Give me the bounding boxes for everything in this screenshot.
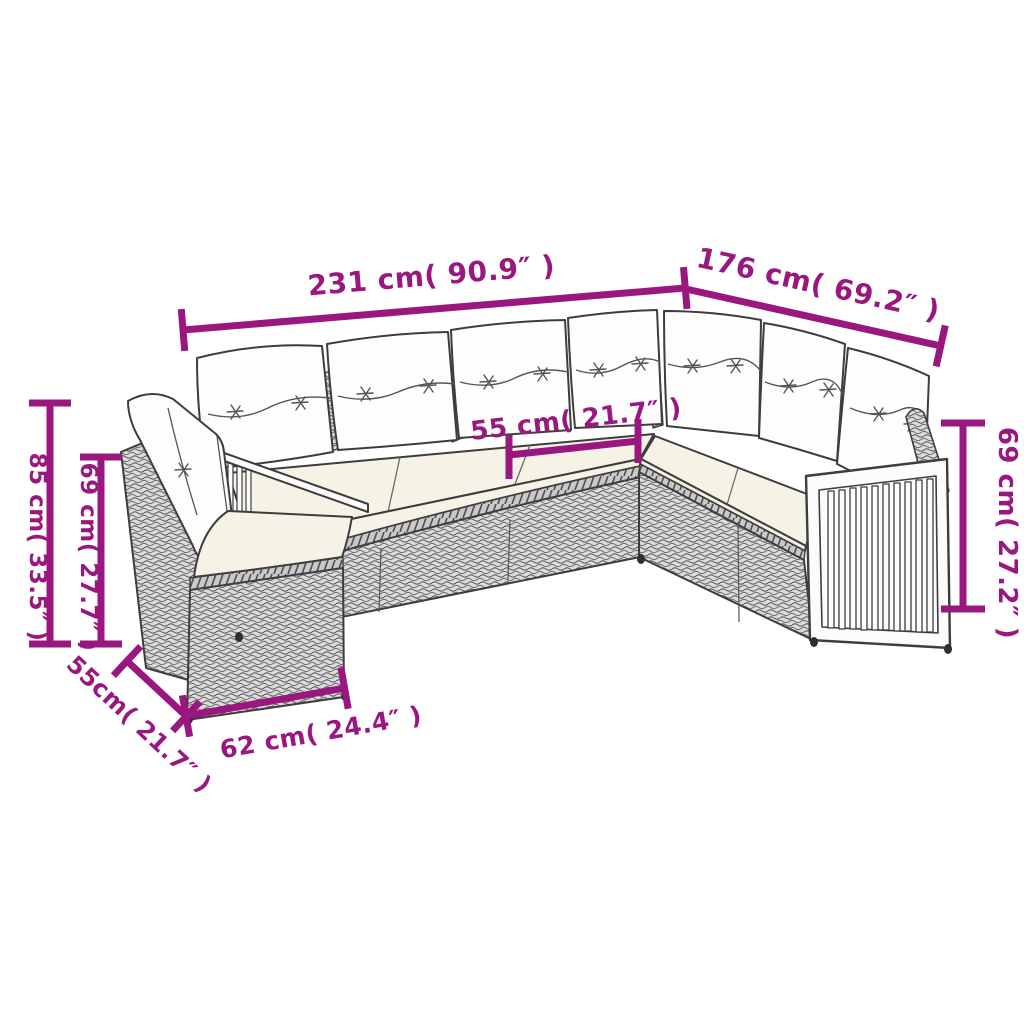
wood-slat-panel-right xyxy=(806,459,950,648)
back-pillow xyxy=(759,323,845,461)
rattan-front-face xyxy=(187,568,344,720)
product-dimension-image: 231 cm( 90.9″ ) 176 cm( 69.2″ ) 55 cm( 2… xyxy=(0,0,1024,1024)
sofa-dimension-diagram: 231 cm( 90.9″ ) 176 cm( 69.2″ ) 55 cm( 2… xyxy=(0,0,1024,1024)
sofa-illustration xyxy=(121,310,952,724)
dim-label-back-height-right: 69 cm( 27.2″ ) xyxy=(992,427,1022,639)
dim-label-back-height-outer-left: 85 cm( 33.5″ ) xyxy=(24,453,50,642)
dimension-back-height-outer-left: 85 cm( 33.5″ ) xyxy=(24,403,71,644)
dim-label-back-height-inner-left: 69 cm( 27.7″ ) xyxy=(75,463,101,652)
back-pillow xyxy=(327,332,457,450)
right-section-base xyxy=(639,436,820,640)
dimension-back-height-right: 69 cm( 27.2″ ) xyxy=(941,423,1022,639)
dimension-back-height-inner-left: 69 cm( 27.7″ ) xyxy=(75,457,122,651)
dim-label-total-width: 231 cm( 90.9″ ) xyxy=(306,249,556,303)
